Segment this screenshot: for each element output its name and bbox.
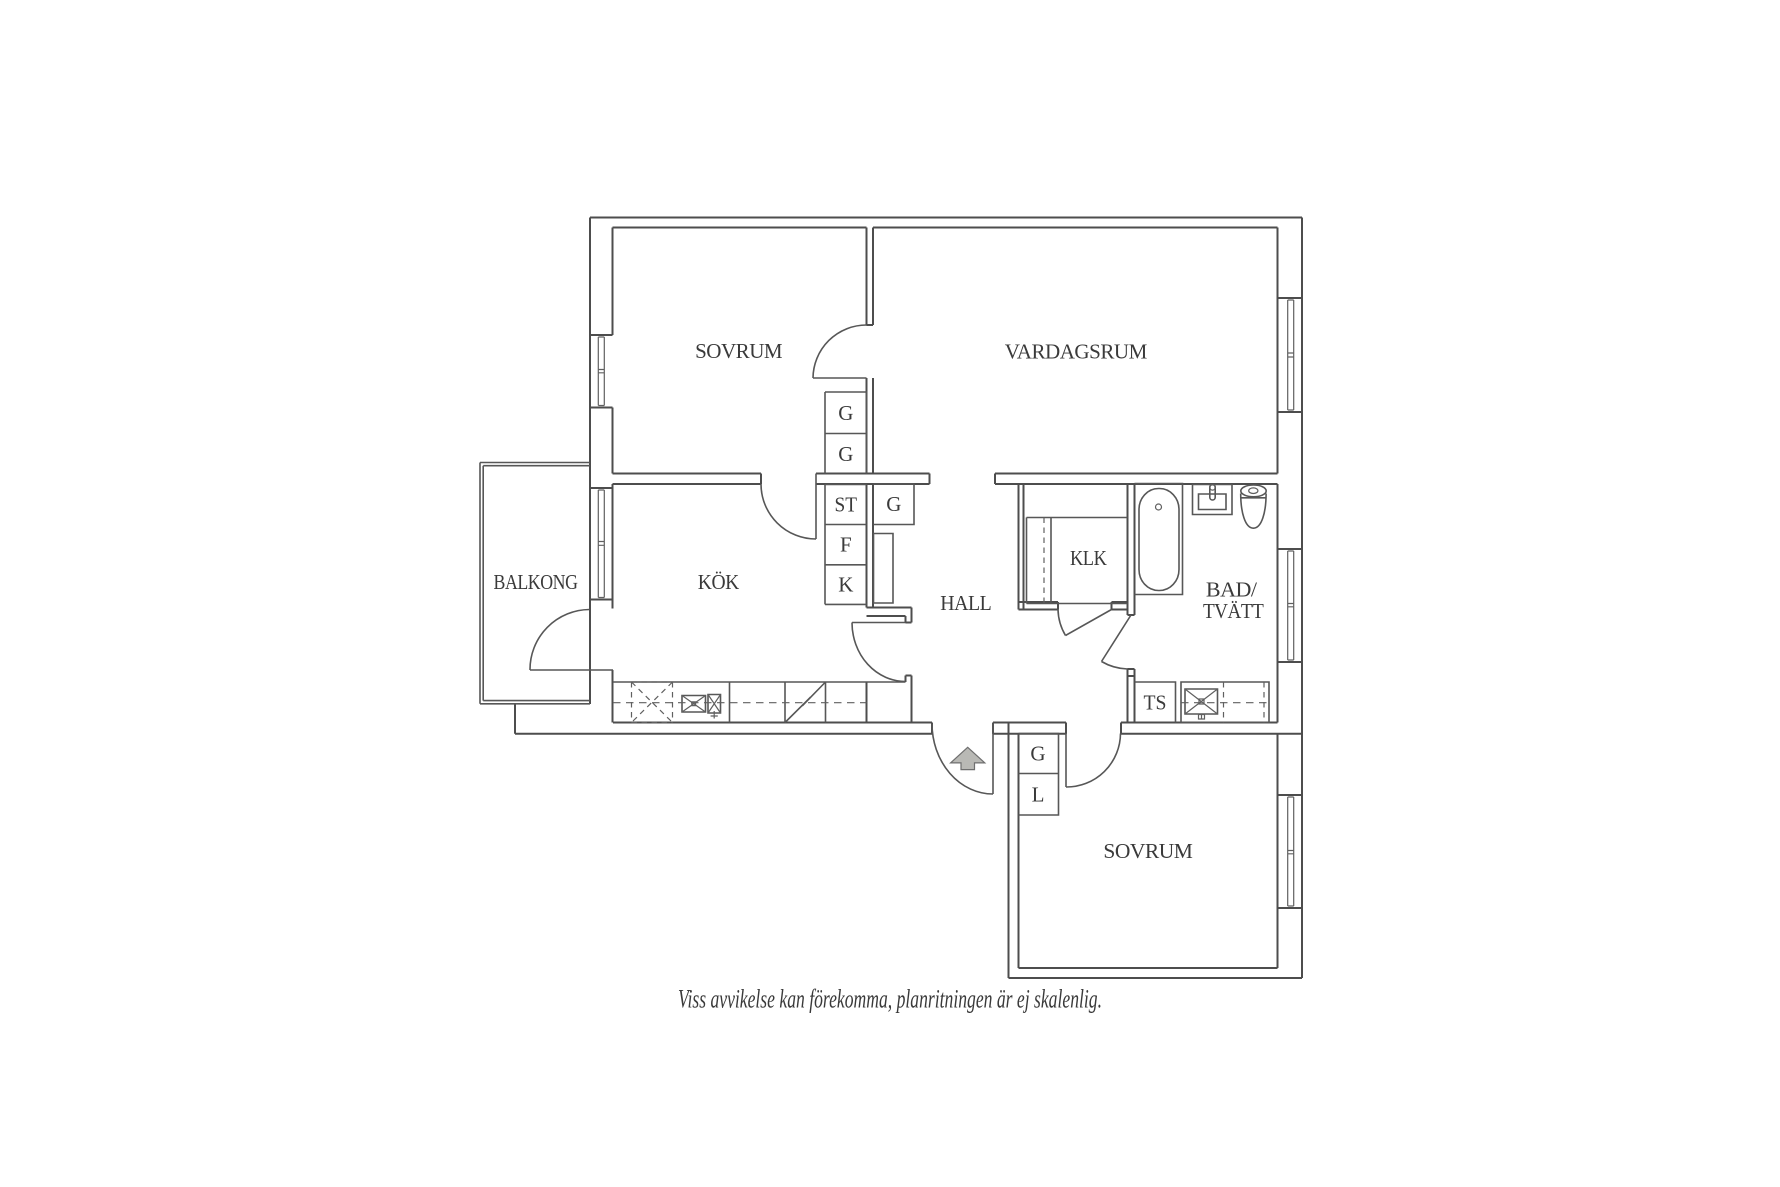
- svg-text:BALKONG: BALKONG: [494, 570, 578, 594]
- svg-text:VARDAGSRUM: VARDAGSRUM: [1005, 340, 1148, 364]
- svg-text:KLK: KLK: [1070, 546, 1107, 570]
- svg-text:G: G: [838, 442, 853, 466]
- svg-text:KÖK: KÖK: [698, 570, 739, 594]
- svg-text:TVÄTT: TVÄTT: [1203, 599, 1264, 623]
- svg-text:L: L: [1032, 783, 1045, 807]
- svg-text:ST: ST: [835, 493, 858, 517]
- svg-text:K: K: [838, 573, 853, 597]
- svg-text:SOVRUM: SOVRUM: [695, 339, 783, 363]
- svg-text:BAD/: BAD/: [1206, 577, 1257, 601]
- svg-text:TS: TS: [1144, 691, 1167, 715]
- svg-text:F: F: [840, 533, 852, 557]
- svg-text:G: G: [1030, 742, 1045, 766]
- svg-text:HALL: HALL: [940, 591, 991, 615]
- svg-text:G: G: [886, 492, 901, 516]
- svg-text:Viss avvikelse kan förekomma,: Viss avvikelse kan förekomma, planritnin…: [678, 984, 1102, 1014]
- svg-text:G: G: [838, 401, 853, 425]
- svg-text:SOVRUM: SOVRUM: [1103, 839, 1193, 863]
